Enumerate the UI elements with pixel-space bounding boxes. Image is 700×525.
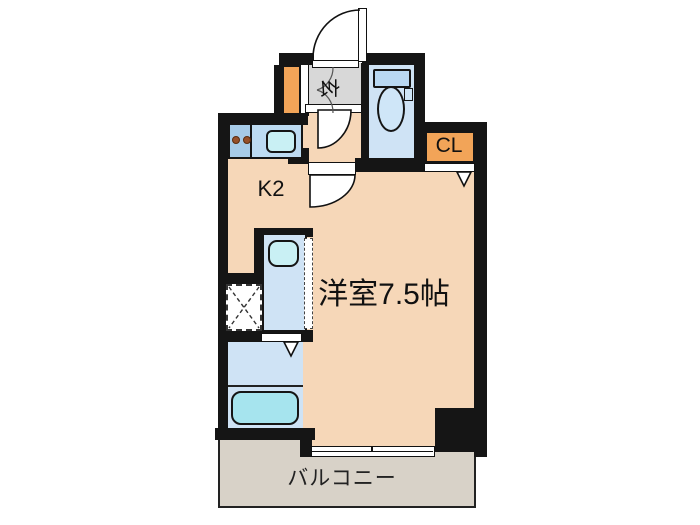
wall	[361, 63, 369, 163]
stove-burner-icon	[232, 136, 240, 144]
hallway-floor	[302, 106, 362, 162]
kitchen-label: K2	[258, 176, 285, 202]
closet-door	[424, 163, 475, 172]
balcony-border-left	[218, 438, 220, 508]
kitchen-sink-icon	[266, 130, 296, 153]
washbasin-sink-icon	[268, 240, 299, 267]
wall	[414, 53, 425, 172]
entrance-door-arc-icon	[313, 10, 360, 58]
balcony-label: バルコニー	[287, 462, 397, 492]
toilet-flush-icon	[404, 88, 413, 101]
wall	[279, 53, 314, 65]
wall	[274, 65, 282, 117]
balcony-border-bottom	[218, 506, 476, 508]
washroom-sliding-door	[304, 238, 313, 329]
window-sash-tick	[371, 447, 373, 452]
entrance-door-leaf	[358, 8, 367, 62]
floor-plan: 玄 K2 CL 洋室7.5帖 バルコニー	[0, 0, 700, 525]
wall	[414, 122, 483, 132]
main-room-label: 洋室7.5帖	[318, 269, 450, 313]
wall	[474, 122, 487, 457]
balcony-border-right	[474, 455, 476, 508]
washing-machine-space	[226, 284, 262, 331]
stove-burner-icon	[243, 136, 251, 144]
bathtub-icon	[231, 391, 299, 425]
wall	[355, 158, 426, 172]
pipe-space	[435, 408, 477, 452]
entrance-threshold	[312, 60, 359, 68]
closet-label: CL	[436, 134, 463, 158]
window-rail	[312, 451, 433, 453]
toilet-bowl-icon	[377, 86, 405, 132]
genkan-label: 玄	[317, 78, 346, 98]
shoe-cabinet	[282, 65, 301, 116]
genkan-step-strip	[305, 104, 362, 113]
window-icon	[311, 446, 435, 457]
main-room-door-leaf	[308, 162, 356, 175]
bathroom-door	[261, 333, 302, 342]
bathroom-divider	[228, 385, 303, 387]
